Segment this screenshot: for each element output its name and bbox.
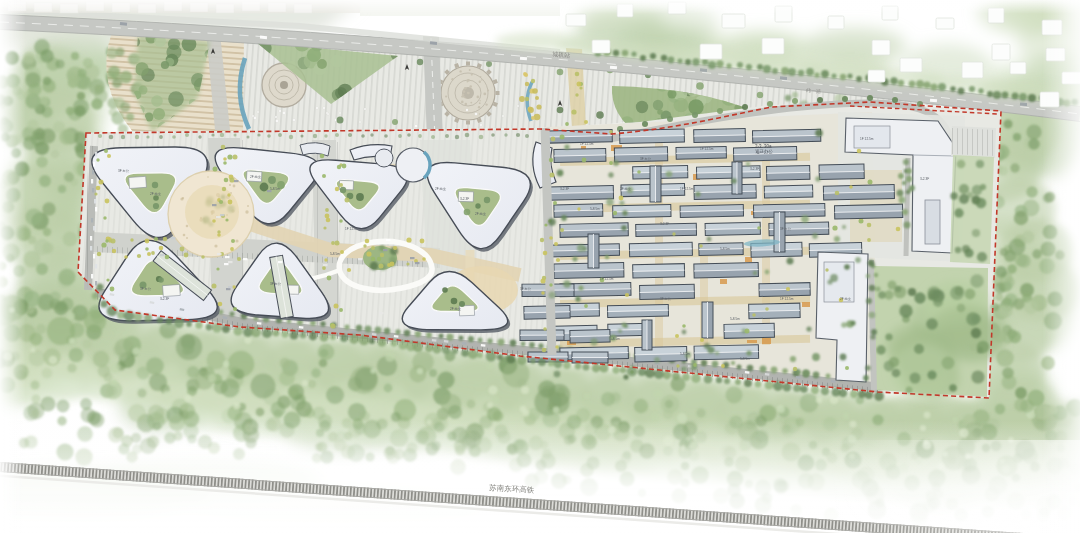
- svg-text:1F 12.5m: 1F 12.5m: [600, 277, 614, 281]
- svg-text:2F 商业: 2F 商业: [620, 187, 632, 191]
- svg-text:1F 12.5m: 1F 12.5m: [345, 227, 359, 231]
- svg-text:2F 商业: 2F 商业: [475, 212, 487, 216]
- svg-text:5-8.5m: 5-8.5m: [740, 357, 750, 361]
- svg-text:1F 12.5m: 1F 12.5m: [580, 142, 594, 146]
- svg-text:纬一路: 纬一路: [806, 87, 821, 94]
- svg-text:2F 商业: 2F 商业: [435, 187, 447, 191]
- svg-text:3F 办公: 3F 办公: [270, 282, 282, 286]
- svg-text:3F 办公: 3F 办公: [660, 297, 672, 301]
- svg-text:1F 12.5m: 1F 12.5m: [700, 147, 714, 151]
- svg-text:3-2.3F: 3-2.3F: [160, 297, 169, 301]
- svg-text:2-3. 30a返迁办公: 2-3. 30a返迁办公: [755, 144, 774, 154]
- svg-text:3-2.3F: 3-2.3F: [460, 197, 469, 201]
- svg-text:3-2.3F: 3-2.3F: [750, 167, 759, 171]
- svg-text:3F 办公: 3F 办公: [780, 227, 792, 231]
- svg-text:2F 商业: 2F 商业: [450, 307, 462, 311]
- svg-text:5-8.5m: 5-8.5m: [730, 317, 740, 321]
- svg-text:2F 商业: 2F 商业: [840, 297, 852, 301]
- svg-text:3F 办公: 3F 办公: [140, 287, 152, 291]
- svg-text:3F 办公: 3F 办公: [640, 157, 652, 161]
- svg-text:3-2.3F: 3-2.3F: [920, 177, 929, 181]
- svg-text:2F 商业: 2F 商业: [150, 192, 162, 196]
- svg-text:2F 商业: 2F 商业: [250, 175, 262, 179]
- svg-text:5-8.5m: 5-8.5m: [590, 207, 600, 211]
- svg-text:3F 办公: 3F 办公: [118, 169, 130, 173]
- svg-text:3F 办公: 3F 办公: [520, 287, 532, 291]
- svg-text:3-2.3F: 3-2.3F: [660, 222, 669, 226]
- svg-text:5-8.5m: 5-8.5m: [680, 352, 690, 356]
- svg-text:5-8.5m: 5-8.5m: [720, 247, 730, 251]
- svg-text:5-8.5m: 5-8.5m: [270, 187, 280, 191]
- svg-text:1F 12.5m: 1F 12.5m: [780, 297, 794, 301]
- svg-text:3-2.3F: 3-2.3F: [560, 187, 569, 191]
- svg-text:5-8.5m: 5-8.5m: [330, 252, 340, 256]
- svg-text:1F 12.5m: 1F 12.5m: [860, 137, 874, 141]
- svg-text:1F 12.5m: 1F 12.5m: [680, 187, 694, 191]
- svg-text:5-8.5m: 5-8.5m: [610, 337, 620, 341]
